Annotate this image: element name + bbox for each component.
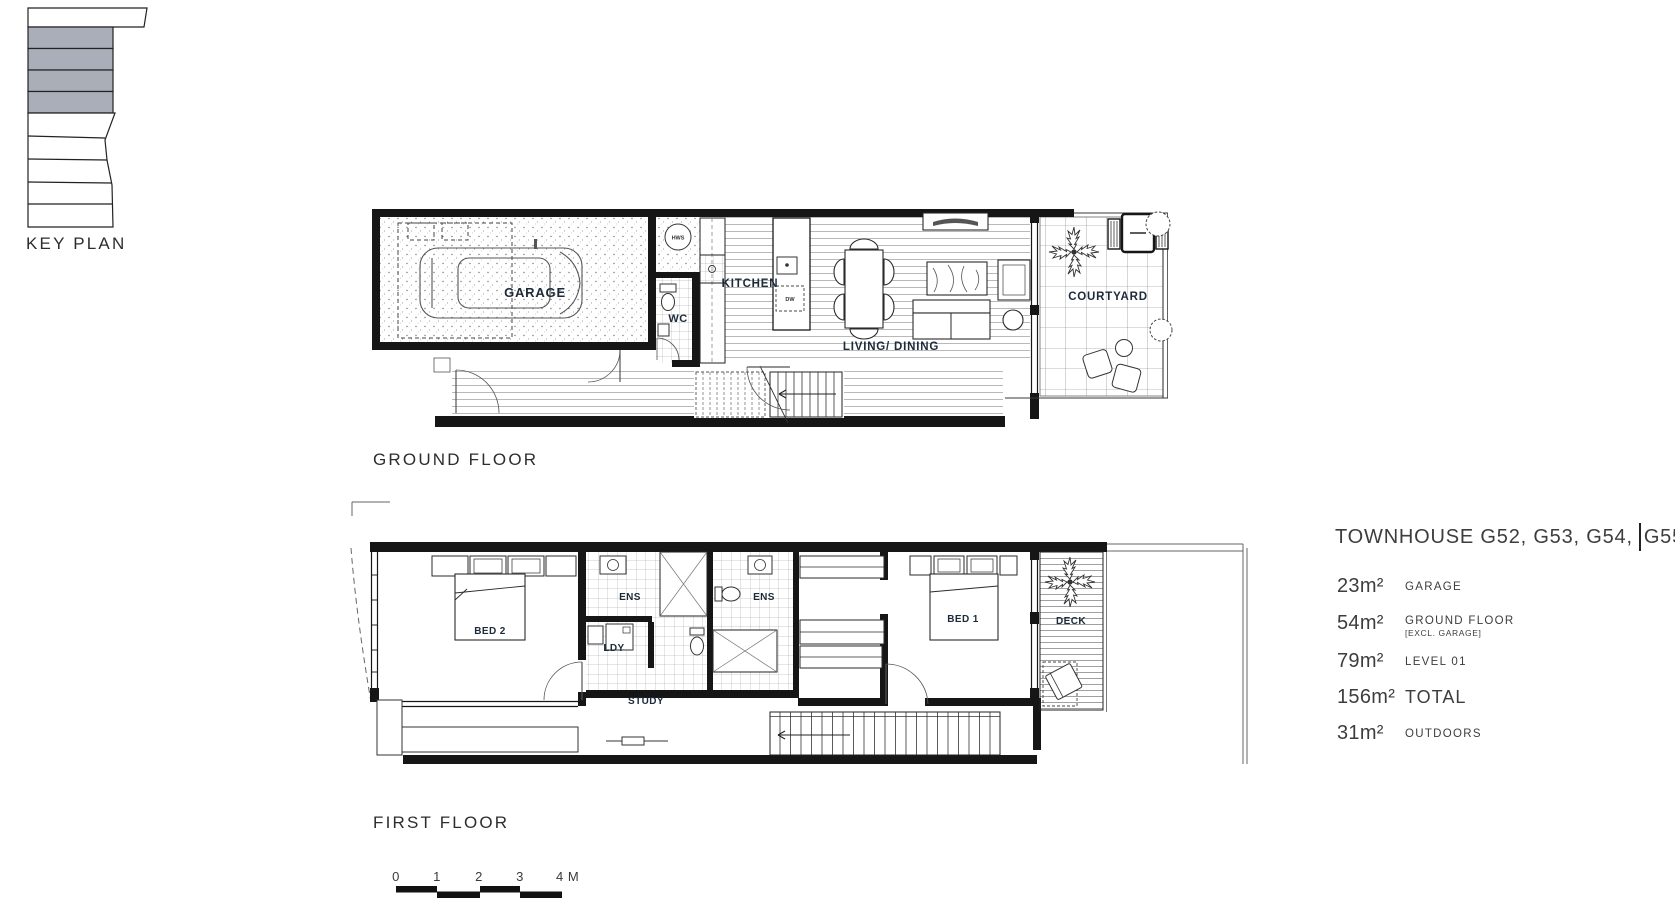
area-value: 54m²	[1337, 612, 1405, 635]
ens-left-label: ENS	[619, 592, 641, 603]
scale-bar-segments	[396, 886, 562, 898]
kitchen-island: DW	[773, 218, 810, 330]
robe-units	[800, 556, 884, 668]
key-plan	[0, 0, 170, 235]
scale-tick-0: 0	[392, 869, 400, 884]
first-floor-plan: BED 2 ENS LDY ENS	[345, 498, 1255, 773]
scale-tick-4m: 4 M	[556, 869, 579, 884]
area-row-garage: 23m² GARAGE	[1337, 575, 1462, 598]
kitchen-label: KITCHEN	[722, 278, 779, 290]
living-dining-label: LIVING/ DINING	[843, 341, 939, 353]
bed1-label: BED 1	[947, 614, 978, 625]
bed1-wardrobe	[910, 556, 1017, 575]
balcony-ledge	[402, 727, 578, 752]
area-note: [EXCL. GARAGE]	[1405, 628, 1515, 638]
area-value: 156m²	[1337, 686, 1405, 709]
bed2-label: BED 2	[474, 626, 505, 637]
bed2-door	[544, 662, 582, 700]
area-row-ground-floor: 54m² GROUND FLOOR [EXCL. GARAGE]	[1337, 612, 1515, 638]
scale-bar: 0 1 2 3 4 M	[365, 858, 600, 906]
area-value: 23m²	[1337, 575, 1405, 598]
kitchen-counter	[700, 218, 725, 363]
study-desk-symbol	[606, 737, 668, 745]
tv-unit-symbol	[923, 213, 988, 230]
study-label: STUDY	[628, 696, 664, 707]
bed1-door	[886, 664, 928, 704]
area-label: GARAGE	[1405, 575, 1462, 593]
scale-tick-2: 2	[475, 869, 483, 884]
scale-tick-1: 1	[433, 869, 441, 884]
key-plan-units	[28, 8, 147, 227]
title-block-heading: TOWNHOUSE G52, G53, G54, G55	[1335, 523, 1675, 551]
area-label: TOTAL	[1405, 686, 1466, 708]
ground-stair-symbol	[694, 366, 844, 423]
scale-tick-3: 3	[516, 869, 524, 884]
first-floor-caption: FIRST FLOOR	[373, 813, 509, 833]
title-text-right: G55	[1644, 526, 1675, 549]
area-row-level-01: 79m² LEVEL 01	[1337, 650, 1467, 673]
area-row-total: 156m² TOTAL	[1337, 686, 1466, 709]
first-stair-symbol	[770, 712, 1000, 755]
area-label: LEVEL 01	[1405, 650, 1467, 668]
sofa-symbol	[913, 300, 990, 339]
ground-floor-caption: GROUND FLOOR	[373, 450, 538, 470]
area-value: 31m²	[1337, 722, 1405, 745]
side-ledge	[377, 700, 402, 755]
hws-label: HWS	[672, 236, 685, 242]
garage-label: GARAGE	[504, 285, 566, 300]
area-label: GROUND FLOOR	[1405, 612, 1515, 627]
text-caret	[1639, 523, 1641, 551]
rug-symbol	[927, 262, 987, 295]
bed2-wardrobe	[432, 556, 576, 576]
area-row-outdoors: 31m² OUTDOORS	[1337, 722, 1482, 745]
laundry-label: LDY	[603, 643, 624, 654]
deck-label: DECK	[1056, 616, 1086, 627]
area-label: OUTDOORS	[1405, 722, 1482, 740]
ground-floor-plan: GARAGE HWS WC DW KITCHEN	[360, 190, 1175, 435]
ens-right-label: ENS	[753, 592, 775, 603]
wc-label: WC	[668, 313, 687, 325]
courtyard-label: COURTYARD	[1068, 291, 1148, 303]
area-value: 79m²	[1337, 650, 1405, 673]
dishwasher-label: DW	[785, 297, 795, 303]
key-plan-label: KEY PLAN	[26, 234, 126, 254]
title-text-left: TOWNHOUSE G52, G53, G54,	[1335, 526, 1633, 549]
bed1-bed-symbol	[930, 574, 998, 640]
